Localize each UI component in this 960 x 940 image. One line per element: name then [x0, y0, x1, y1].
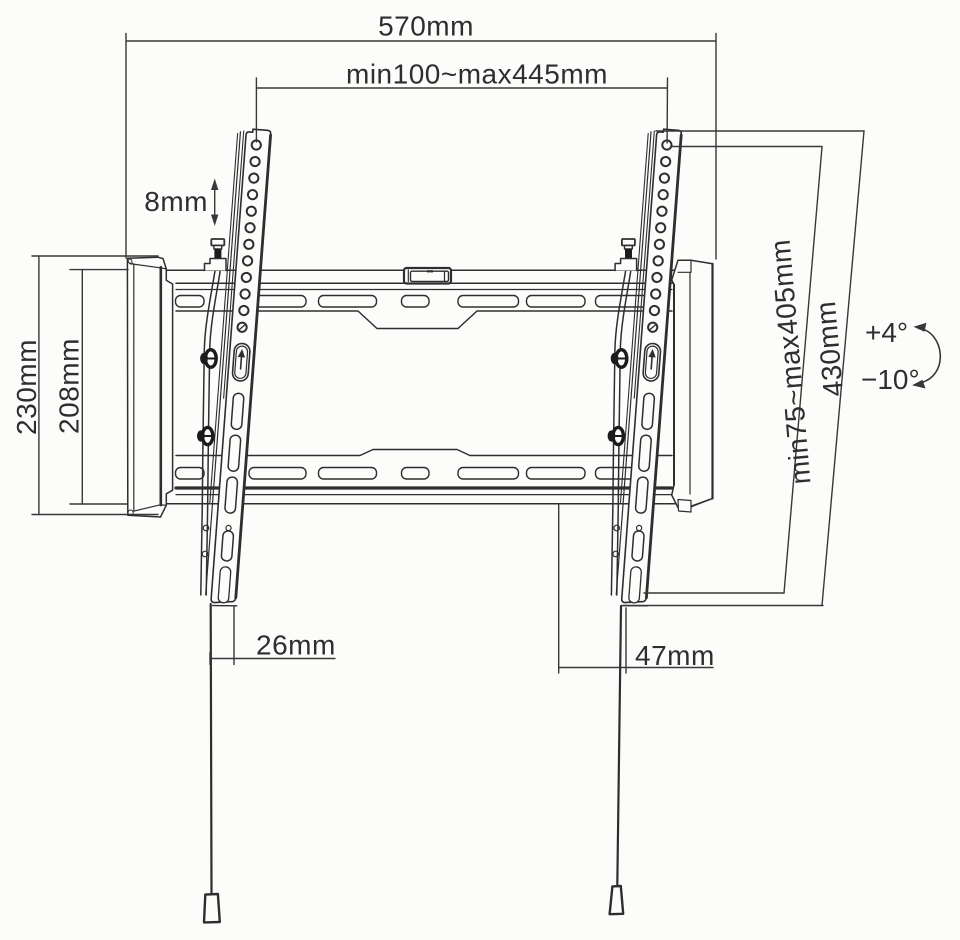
svg-text:−10°: −10° — [861, 364, 920, 395]
svg-text:26mm: 26mm — [256, 630, 336, 661]
svg-text:8mm: 8mm — [144, 186, 208, 217]
svg-text:min100~max445mm: min100~max445mm — [346, 59, 608, 90]
svg-text:570mm: 570mm — [378, 11, 474, 42]
svg-text:47mm: 47mm — [635, 640, 715, 671]
svg-text:+4°: +4° — [865, 317, 908, 348]
svg-text:208mm: 208mm — [54, 338, 85, 434]
svg-text:230mm: 230mm — [11, 339, 42, 435]
